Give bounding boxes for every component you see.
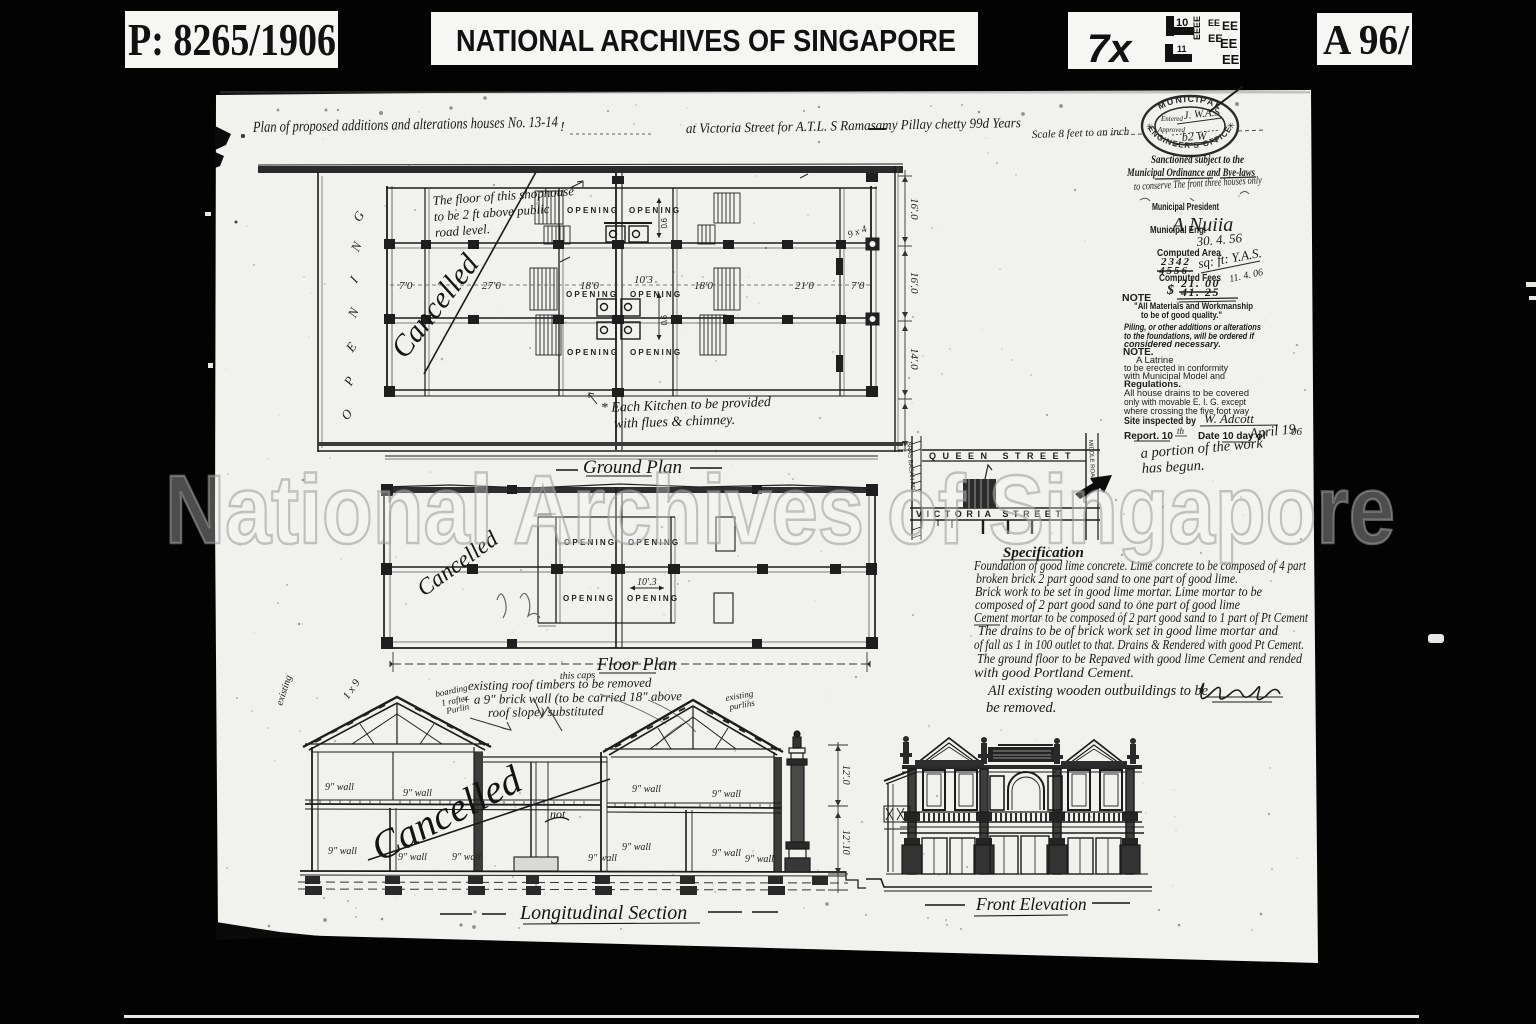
svg-text:Front Elevation: Front Elevation <box>975 894 1087 914</box>
svg-text:7'0: 7'0 <box>399 280 413 292</box>
svg-text:✳: ✳ <box>1227 121 1235 131</box>
svg-text:with good Portland Cement.: with good Portland Cement. <box>974 665 1134 680</box>
svg-text:21'0: 21'0 <box>795 280 814 292</box>
svg-text:OPENING: OPENING <box>563 594 615 603</box>
svg-text:$: $ <box>1166 283 1174 298</box>
svg-text:9" wall: 9" wall <box>325 782 354 793</box>
svg-text:16'.0: 16'.0 <box>908 272 920 294</box>
svg-text:P: 8265/1906: P: 8265/1906 <box>128 14 336 65</box>
svg-text:OPENING: OPENING <box>630 290 682 299</box>
svg-text:12'.10: 12'.10 <box>840 830 851 855</box>
svg-text:18'0: 18'0 <box>580 280 599 292</box>
svg-text:b2 W: b2 W <box>1181 128 1208 144</box>
svg-text:be removed.: be removed. <box>986 700 1056 716</box>
svg-text:9" wall: 9" wall <box>632 784 661 795</box>
svg-text:14'.0: 14'.0 <box>908 348 920 370</box>
svg-text:Sanctioned subject to the: Sanctioned subject to the <box>1151 154 1244 166</box>
svg-text:A 96/: A 96/ <box>1323 18 1410 64</box>
svg-text:9" wall: 9" wall <box>712 848 741 859</box>
svg-text:EE: EE <box>1222 19 1238 33</box>
svg-text:OPENING: OPENING <box>629 206 681 215</box>
svg-text:9" wall: 9" wall <box>745 854 774 865</box>
svg-text:Entered: Entered <box>1160 115 1183 123</box>
svg-text:Municipal President: Municipal President <box>1152 202 1219 213</box>
svg-text:All existing wooden outbuil: All existing wooden outbuildings to be <box>987 683 1209 699</box>
svg-text:10: 10 <box>1176 17 1188 29</box>
svg-text:11: 11 <box>1177 44 1187 54</box>
svg-text:Longitudinal Section: Longitudinal Section <box>519 902 687 924</box>
svg-text:National Archives of Singapore: National Archives of Singapore <box>165 455 1395 564</box>
svg-text:roof slope) substituted: roof slope) substituted <box>488 703 605 720</box>
svg-text:27'0: 27'0 <box>482 280 501 292</box>
svg-text:NATIONAL ARCHIVES OF SINGAPORE: NATIONAL ARCHIVES OF SINGAPORE <box>456 23 956 58</box>
svg-text:06: 06 <box>1291 426 1303 438</box>
svg-text:9'0: 9'0 <box>659 315 668 326</box>
svg-text:OPENING: OPENING <box>627 594 679 603</box>
svg-text:Floor Plan: Floor Plan <box>596 654 677 674</box>
svg-text:OPENING: OPENING <box>567 348 619 357</box>
svg-text:!: ! <box>560 120 565 135</box>
svg-text:9" wall: 9" wall <box>588 853 617 864</box>
svg-text:9" wall: 9" wall <box>622 842 651 853</box>
svg-text:16'.0: 16'.0 <box>908 198 920 220</box>
svg-text:EEEE: EEEE <box>1192 16 1202 40</box>
svg-text:EE: EE <box>1220 36 1238 51</box>
svg-text:Site inspected by: Site inspected by <box>1124 416 1196 427</box>
svg-text:7'0: 7'0 <box>851 280 865 292</box>
svg-text:Report. 10: Report. 10 <box>1124 431 1173 442</box>
svg-text:9" wall: 9" wall <box>328 846 357 857</box>
svg-text:✳: ✳ <box>1146 122 1154 132</box>
svg-text:12'.0: 12'.0 <box>840 765 851 785</box>
svg-text:7x: 7x <box>1087 27 1133 71</box>
svg-text:10'.3: 10'.3 <box>637 577 657 588</box>
svg-text:W. Adcott: W. Adcott <box>1204 411 1254 426</box>
svg-text:of fall as 1 in 100 outlet to: of fall as 1 in 100 outlet to that. Drai… <box>974 637 1304 652</box>
svg-text:9" wall: 9" wall <box>452 852 481 863</box>
svg-text:EE: EE <box>1208 18 1220 28</box>
svg-text:EE: EE <box>1222 52 1240 67</box>
svg-text:OPENING: OPENING <box>567 206 619 215</box>
svg-text:10'3: 10'3 <box>634 274 653 286</box>
svg-text:9" wall: 9" wall <box>712 789 741 800</box>
svg-text:not: not <box>550 807 566 821</box>
svg-text:to be of good quality.": to be of good quality." <box>1141 310 1222 321</box>
svg-text:The drains to be of brick: The drains to be of brick work set in go… <box>978 623 1278 638</box>
svg-text:18'0: 18'0 <box>694 280 713 292</box>
svg-text:th: th <box>1177 426 1185 436</box>
svg-text:OPENING: OPENING <box>630 348 682 357</box>
svg-text:The ground floor to be Repa: The ground floor to be Repaved with good… <box>977 651 1302 666</box>
svg-text:9'0: 9'0 <box>659 218 668 229</box>
